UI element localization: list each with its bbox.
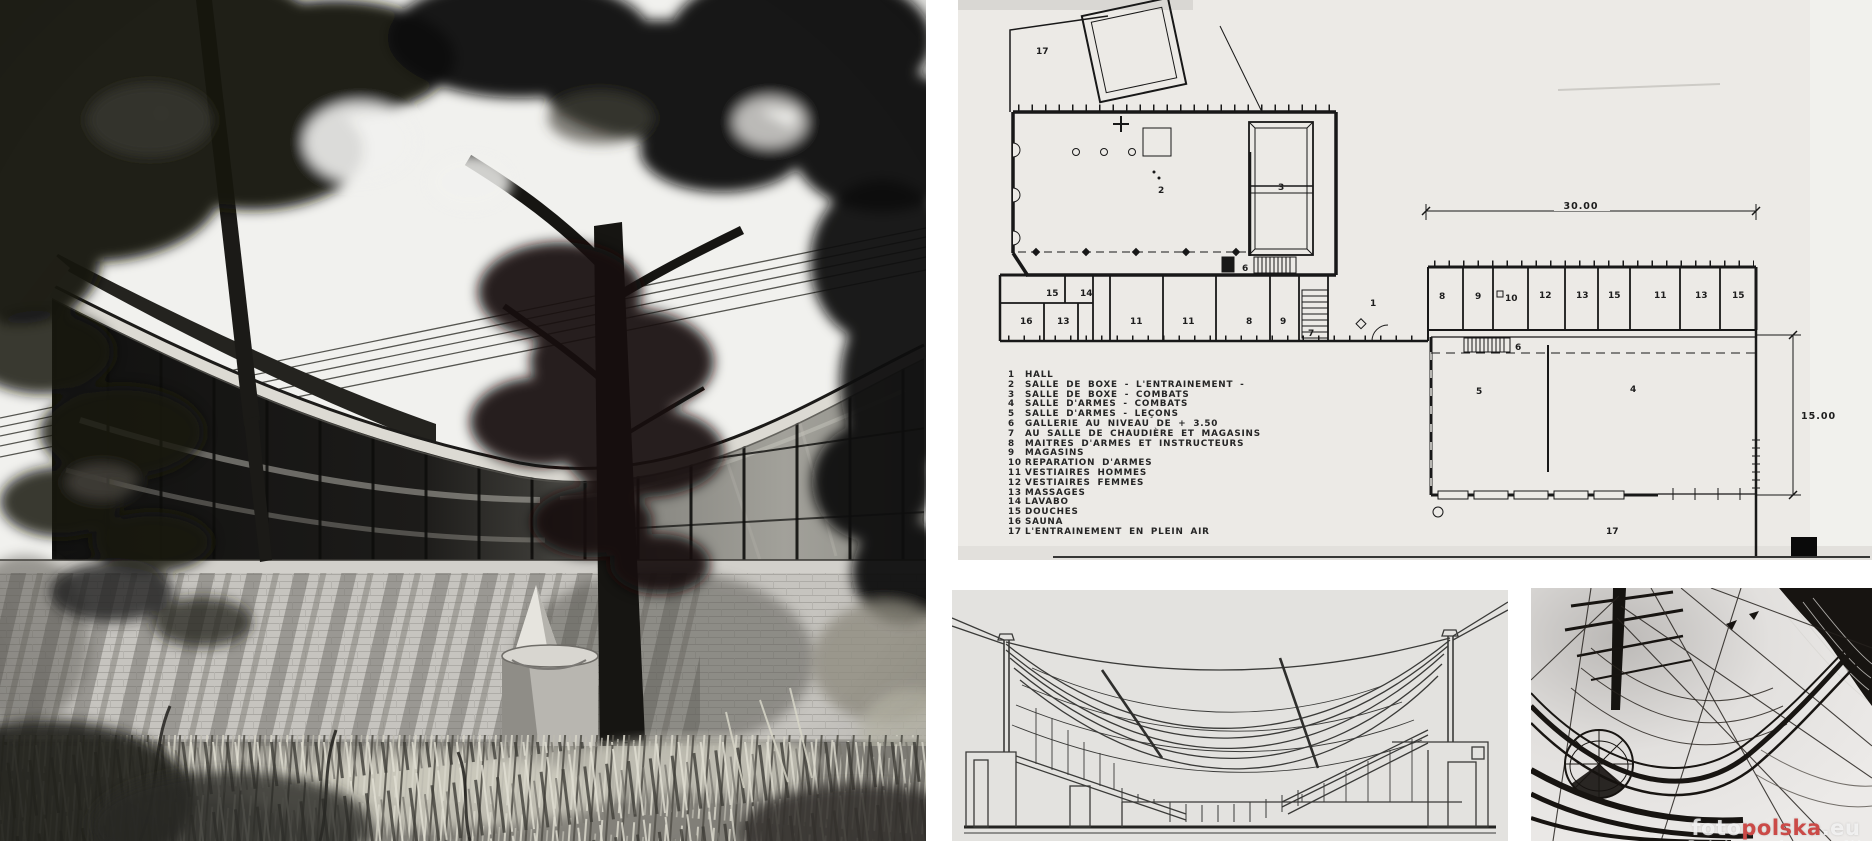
floor-plan: 30.00 15.00 17 2 3 6 15 14 16 13 11 11 8… — [958, 0, 1872, 560]
room-label: 8 — [1439, 292, 1445, 302]
room-label: 13 — [1057, 317, 1070, 327]
room-label: 8 — [1246, 317, 1252, 327]
room-label: 14 — [1080, 289, 1093, 299]
pavilion-photo — [0, 0, 926, 841]
room-label: 5 — [1476, 387, 1482, 397]
room-label: 17 — [1606, 527, 1619, 537]
plan-legend: 1HALL 2SALLE DE BOXE - L'ENTRAINEMENT - … — [1008, 371, 1261, 538]
basket — [1565, 730, 1633, 798]
room-label: 15 — [1046, 289, 1059, 299]
room-label: 4 — [1630, 385, 1636, 395]
dim-height-label: 15.00 — [1801, 411, 1836, 422]
room-label: 12 — [1539, 291, 1552, 301]
room-label: 7 — [1308, 329, 1314, 339]
pavilion-photo-art — [0, 0, 926, 841]
room-label: 9 — [1475, 292, 1481, 302]
room-label: 16 — [1020, 317, 1033, 327]
room-label: 10 — [1505, 294, 1518, 304]
room-label: 11 — [1654, 291, 1667, 301]
room-label: 13 — [1695, 291, 1708, 301]
dim-width-label: 30.00 — [1563, 201, 1598, 212]
room-label: 11 — [1130, 317, 1143, 327]
room-label: 6 — [1515, 343, 1521, 353]
section-drawing — [952, 590, 1508, 841]
room-label: 15 — [1608, 291, 1621, 301]
rigging-photo: fotopolska.eu Polska na fotografii — [1531, 588, 1872, 841]
room-label: 17 — [1036, 47, 1049, 57]
plan-north-block — [1791, 537, 1817, 556]
room-label: 11 — [1182, 317, 1195, 327]
legend-row: 17L'ENTRAINEMENT EN PLEIN AIR — [1008, 528, 1261, 538]
legend-label: L'ENTRAINEMENT EN PLEIN AIR — [1025, 528, 1210, 538]
room-label: 3 — [1278, 183, 1284, 193]
room-label: 15 — [1732, 291, 1745, 301]
section-drawing-art — [952, 590, 1508, 841]
photo-vignette — [0, 0, 926, 841]
room-label: 6 — [1242, 264, 1248, 274]
room-label: 9 — [1280, 317, 1286, 327]
photo-collage: 30.00 15.00 17 2 3 6 15 14 16 13 11 11 8… — [0, 0, 1872, 841]
room-label: 2 — [1158, 186, 1164, 196]
room-label: 13 — [1576, 291, 1589, 301]
rigging-photo-art — [1531, 588, 1872, 841]
room-label: 1 — [1370, 299, 1376, 309]
